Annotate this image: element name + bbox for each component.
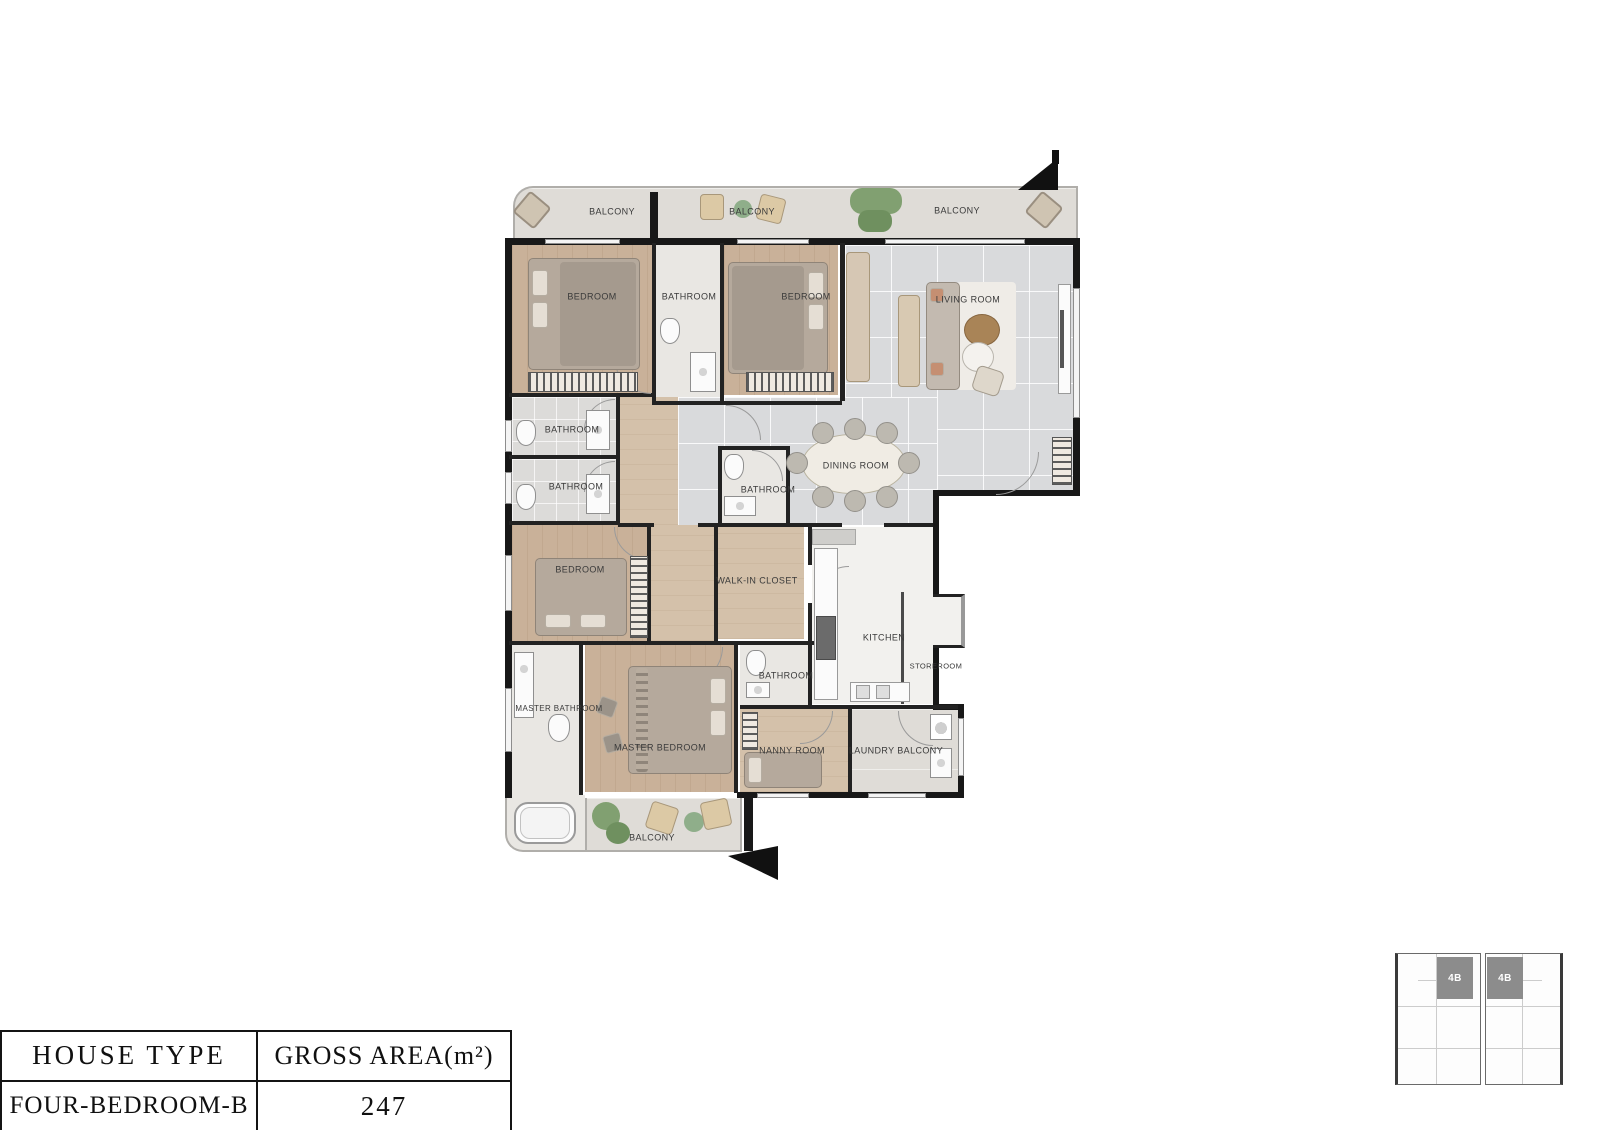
bed-top-left-pillow-2: [532, 302, 548, 328]
room-label-bathroom-c: BATHROOM: [741, 486, 796, 495]
toilet-bathA: [516, 420, 536, 446]
room-label-walk-in-closet: WALK-IN CLOSET: [716, 577, 797, 586]
iw-bed2-living: [840, 243, 845, 401]
window-bottom-nanny: [757, 793, 809, 798]
room-label-master-bathroom: MASTER BATHROOM: [515, 705, 602, 713]
nanny-bed-pillow: [748, 757, 762, 783]
iw-baths-divider: [509, 455, 616, 459]
room-label-living-room: LIVING ROOM: [936, 296, 1000, 305]
bathtub-inner: [520, 807, 570, 839]
room-label-nanny-room: NANNY ROOM: [759, 747, 825, 756]
balcony-bottom-plant-2: [606, 822, 630, 844]
wardrobe-bedroom1: [528, 372, 638, 392]
info-table-header-house-type: HOUSE TYPE: [2, 1032, 258, 1082]
storeroom-bay: [933, 594, 965, 648]
bed-top-left-blanket: [560, 262, 636, 366]
vanity-bathD: [746, 682, 770, 698]
toilet-bath-top: [660, 318, 680, 344]
balcony-bottom-chair-2: [699, 797, 732, 830]
dining-chair-1: [812, 422, 834, 444]
keyplan-line: [1398, 1048, 1480, 1049]
iw-bed2-bottom: [652, 401, 842, 405]
bed-top-left-pillow-1: [532, 270, 548, 296]
dining-chair-4: [812, 486, 834, 508]
iw-masterbed-right: [734, 645, 738, 793]
master-toilet: [548, 714, 570, 742]
iw-bathC-left: [718, 446, 722, 525]
sofa-pillow-2: [930, 362, 944, 376]
laundry-washer: [930, 714, 952, 740]
info-table-header-gross-area: GROSS AREA(m²): [258, 1032, 510, 1082]
room-label-bedroom-3: BEDROOM: [555, 566, 604, 575]
tv-panel: [1060, 310, 1064, 368]
room-label-balcony-2: BALCONY: [729, 208, 775, 217]
iw-masterbath-right: [579, 645, 583, 795]
master-bed-curtain: [636, 668, 648, 772]
dresser-living-wall: [846, 252, 870, 382]
iw-baths-right: [616, 395, 620, 525]
room-label-balcony-1: BALCONY: [589, 208, 635, 217]
info-table: HOUSE TYPE GROSS AREA(m²) FOUR-BEDROOM-B…: [0, 1030, 512, 1130]
room-label-bathroom-b: BATHROOM: [549, 483, 604, 492]
balcony-top-stub: [650, 192, 658, 238]
key-plan: 4B 4B: [1385, 945, 1570, 1095]
bed-left-pillow-1: [545, 614, 571, 628]
room-label-bathroom-top: BATHROOM: [662, 293, 717, 302]
window-bottom-laundry: [868, 793, 926, 798]
wall-balcony-stub-bottom: [744, 795, 753, 851]
room-label-bedroom-2: BEDROOM: [781, 293, 830, 302]
room-label-balcony-bottom: BALCONY: [629, 834, 675, 843]
info-table-value-gross-area: 247: [258, 1082, 510, 1130]
island-sink-1: [856, 685, 870, 699]
island-sink-2: [876, 685, 890, 699]
window-left-3: [505, 555, 512, 611]
vanity-bathB: [586, 474, 610, 514]
room-label-kitchen: KITCHEN: [863, 634, 905, 643]
window-top-2: [737, 239, 809, 244]
master-bed-pillow-1: [710, 678, 726, 704]
room-label-laundry-balcony: LAUNDRY BALCONY: [849, 747, 943, 756]
kitchen-stove: [816, 616, 836, 660]
iw-bath-bed2: [720, 243, 724, 403]
dining-chair-3: [876, 422, 898, 444]
dining-chair-5: [844, 490, 866, 512]
balcony-chair-mid-1: [700, 194, 724, 220]
wall-right-mid-b: [933, 648, 939, 708]
vanity-bath-top: [690, 352, 716, 392]
balcony-planter-2: [858, 210, 892, 232]
dining-chair-6: [876, 486, 898, 508]
hall-corridor-floor: [620, 397, 678, 525]
master-bed-pillow-2: [710, 710, 726, 736]
window-top-3: [885, 239, 1025, 244]
bed-left-pillow-2: [580, 614, 606, 628]
room-label-bedroom-1: BEDROOM: [567, 293, 616, 302]
keyplan-unit-label: 4B: [1498, 973, 1512, 984]
iw-bed1-bottom: [509, 393, 652, 397]
keyplan-unit-4b-right: 4B: [1487, 957, 1523, 999]
vanity-bathC: [724, 496, 756, 516]
floor-plan: BALCONY BALCONY BALCONY BEDROOM BATHROOM…: [0, 0, 1600, 900]
window-left-2: [505, 472, 512, 504]
window-left-1: [505, 420, 512, 452]
window-right-living: [1073, 288, 1080, 418]
corridor-2-floor: [651, 525, 714, 641]
coffee-table-round: [964, 314, 1000, 346]
wardrobe-bedroom3: [630, 556, 648, 638]
dining-chair-7: [786, 452, 808, 474]
room-label-storeroom: STOREROOM: [910, 662, 963, 670]
toilet-bathB: [516, 484, 536, 510]
room-label-bathroom-d: BATHROOM: [759, 672, 814, 681]
iw-mid-bottom: [509, 641, 814, 645]
shoe-cabinet: [1052, 437, 1072, 485]
window-right-laundry: [958, 718, 964, 776]
dining-chair-8: [898, 452, 920, 474]
radiator-bedroom2: [746, 372, 834, 392]
keyplan-unit-4b-left: 4B: [1437, 957, 1473, 999]
entry-arrow-top: [1018, 150, 1064, 196]
room-label-master-bedroom: MASTER BEDROOM: [614, 744, 706, 753]
wall-right-mid-a: [933, 490, 939, 594]
room-label-bathroom-a: BATHROOM: [545, 426, 600, 435]
room-label-dining-room: DINING ROOM: [823, 462, 889, 471]
entry-arrow-bottom: [728, 846, 780, 880]
room-label-balcony-3: BALCONY: [934, 207, 980, 216]
console-table: [898, 295, 920, 387]
keyplan-line: [1398, 1006, 1480, 1007]
bed-top-mid-pillow-2: [808, 304, 824, 330]
iw-bed1-bath: [652, 243, 656, 401]
keyplan-unit-label: 4B: [1448, 973, 1462, 984]
toilet-bathC: [724, 454, 744, 480]
info-table-value-house-type: FOUR-BEDROOM-B: [2, 1082, 258, 1130]
nanny-rack: [742, 712, 758, 750]
iw-hall-bottom-c: [884, 523, 933, 527]
iw-bathB-bottom: [509, 521, 616, 525]
keyplan-line: [1486, 1048, 1560, 1049]
bed-top-mid-blanket: [732, 266, 804, 370]
iw-hall-bottom-b: [698, 523, 842, 527]
dining-chair-2: [844, 418, 866, 440]
keyplan-line: [1486, 1006, 1560, 1007]
window-left-4: [505, 688, 512, 752]
window-top-1: [545, 239, 620, 244]
kitchen-counter-top: [812, 529, 856, 545]
iw-kitchen-left-b: [808, 603, 812, 705]
floor-plan-page: BALCONY BALCONY BALCONY BEDROOM BATHROOM…: [0, 0, 1600, 1130]
